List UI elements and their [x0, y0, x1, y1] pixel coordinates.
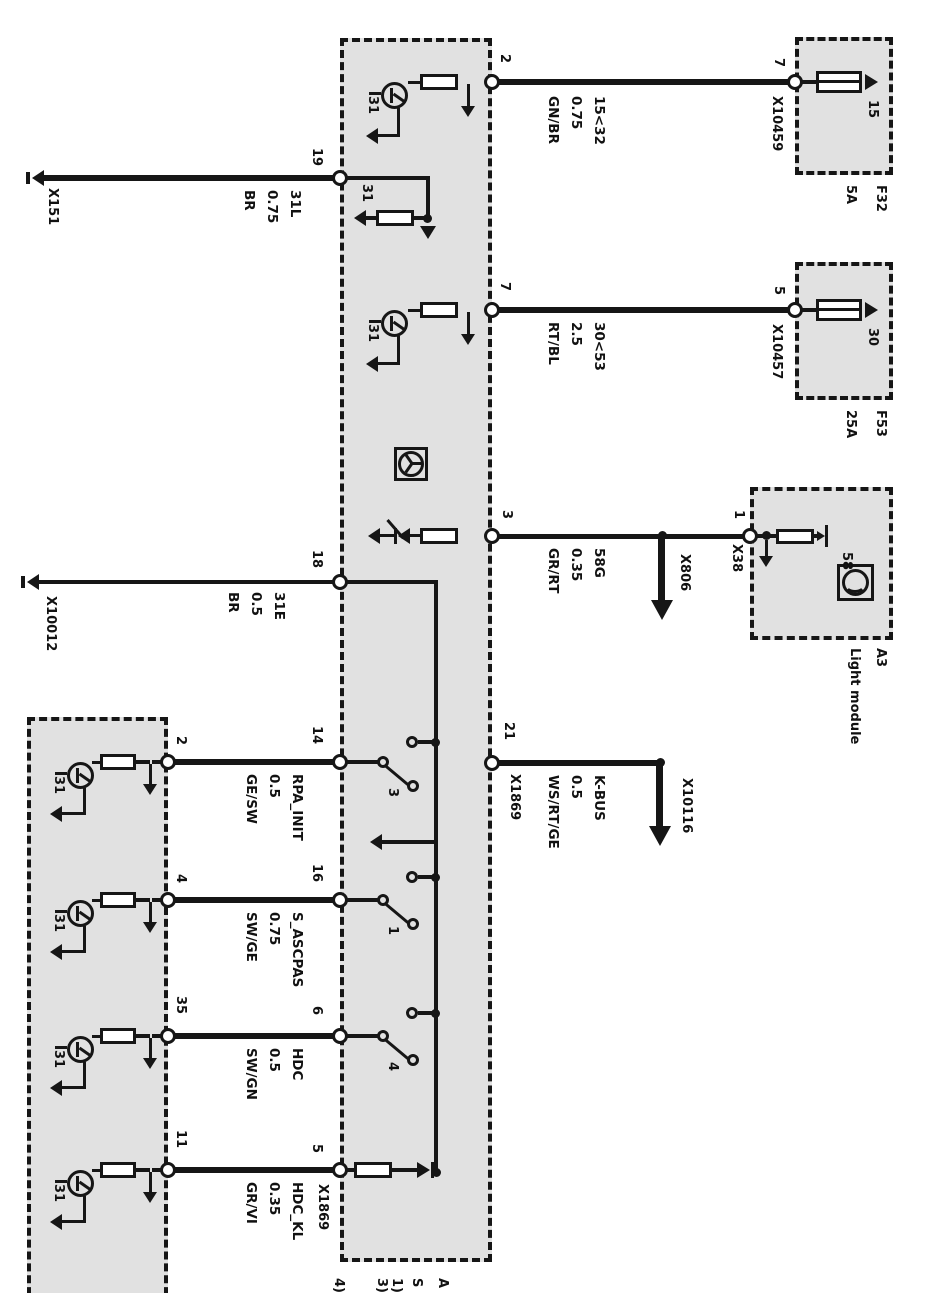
pin-f32-7 — [787, 74, 803, 90]
driver7-arrow-icon — [461, 334, 475, 345]
ground-icon — [50, 944, 62, 960]
pin-7 — [484, 302, 500, 318]
bdrv4-emitter-h — [83, 1196, 86, 1223]
bdrv4-seg2 — [92, 1169, 100, 1172]
terminal-31-label: 31 — [51, 1050, 66, 1068]
pin-18 — [332, 574, 348, 590]
wire-color: SW/GN — [239, 1048, 262, 1100]
pin-label-b4: 4 — [173, 874, 188, 883]
wire-label-15-32: 15<32 0.75 GN/BR — [541, 96, 610, 145]
wire-hdc-kl — [166, 1167, 340, 1173]
bdrv1-emitter-h — [83, 788, 86, 815]
contact-icon — [406, 871, 418, 883]
wire-name: S_ASCPAS — [285, 912, 308, 987]
pin-label-6: 6 — [309, 1006, 324, 1015]
light-module-name: Light module — [847, 648, 862, 744]
p3-seg2 — [380, 534, 394, 537]
connector-label-x10116: X10116 — [679, 778, 694, 833]
wire-label-s-ascpas: S_ASCPAS 0.75 SW/GE — [239, 912, 308, 987]
driver7-seg — [408, 309, 420, 312]
bdrv2-seg2 — [92, 899, 100, 902]
wire-name: 15<32 — [587, 96, 610, 145]
x10012-terminal-icon — [27, 574, 39, 590]
fuse-f53-name: F53 — [873, 410, 888, 437]
pin-b2 — [160, 754, 176, 770]
connector-label-x1869-top: X1869 — [507, 774, 522, 820]
switch-label-3: 3 — [385, 788, 400, 797]
switch3-tip — [407, 780, 419, 792]
terminal-label-30: 30 — [865, 328, 880, 346]
switch4-tip — [407, 1054, 419, 1066]
terminal-31-label: 31 — [365, 324, 380, 342]
x10012-terminal-bar — [21, 576, 25, 588]
pin-label-16: 16 — [309, 864, 324, 882]
pin-14 — [332, 754, 348, 770]
pin-label-b35: 35 — [173, 996, 188, 1014]
coupling-arrow-icon — [370, 834, 382, 850]
bdrv4-dashed-link — [136, 1168, 150, 1172]
a3-branch-shaft — [765, 540, 768, 556]
terminal-31-label: 31 — [365, 96, 380, 114]
pin-b11 — [160, 1162, 176, 1178]
connector-label-x10012: X10012 — [43, 596, 58, 651]
pin-a3-1 — [742, 528, 758, 544]
connector-label-x10457: X10457 — [769, 324, 784, 379]
pin-f53-5 — [787, 302, 803, 318]
x151-terminal-icon — [32, 170, 44, 186]
p19-seg — [366, 216, 376, 220]
wire-gauge: 0.5 — [262, 1048, 285, 1100]
resistor-icon — [100, 1162, 136, 1178]
wire-31e — [37, 580, 340, 584]
wire-15-32 — [487, 79, 797, 85]
fuse-f53-rating: 25A — [843, 410, 858, 438]
pin-19 — [332, 170, 348, 186]
wire-label-rpa-init: RPA_INIT 0.5 GE/SW — [239, 774, 308, 841]
wire-color: SW/GE — [239, 912, 262, 987]
terminal-31-label: 31 — [51, 776, 66, 794]
pin-label-21: 21 — [501, 722, 516, 740]
wire-gauge: 0.75 — [564, 96, 587, 145]
p3-seg1 — [410, 534, 420, 537]
pin-16 — [332, 892, 348, 908]
wire-color: GR/VI — [239, 1182, 262, 1240]
bdrv3-arrow-shaft — [149, 1038, 152, 1058]
driver2-base-lead — [369, 92, 381, 95]
wire-name: 31E — [267, 592, 290, 620]
transistor-icon — [67, 762, 94, 789]
resistor-icon — [354, 1162, 392, 1178]
bdrv3-base-lead — [55, 1046, 67, 1049]
driver2-seg — [408, 81, 420, 84]
ground-icon — [50, 1214, 62, 1230]
resistor-icon — [376, 210, 414, 226]
wire-kbus — [487, 760, 662, 766]
wire-label-31e: 31E 0.5 BR — [221, 592, 290, 620]
wire-gauge: 0.5 — [262, 774, 285, 841]
bdrv1-base-lead — [55, 772, 67, 775]
fuse-f32-rating: 5A — [843, 185, 858, 204]
bdrv2-base-lead — [55, 910, 67, 913]
wire-gauge: 0.5 — [564, 775, 587, 849]
wire-name: 30<53 — [587, 322, 610, 371]
driver7-emitter-h — [397, 336, 400, 365]
ground-icon — [50, 1080, 62, 1096]
bdrv2-arrow-icon — [143, 922, 157, 933]
bdrv3-seg2 — [92, 1035, 100, 1038]
schematic-canvas: 2 7 3 21 19 18 14 16 6 5 2 4 35 11 7 X10… — [0, 0, 932, 1293]
bdrv4-emitter-v — [62, 1220, 86, 1223]
p19-arrow-icon — [420, 226, 436, 239]
terminal-31-label: 31 — [51, 1184, 66, 1202]
resistor-icon — [100, 754, 136, 770]
bdrv1-seg2 — [92, 761, 100, 764]
bdrv4-arrow-shaft — [149, 1172, 152, 1192]
wire-gauge: 0.75 — [260, 190, 283, 223]
a3-branch-arrow-icon — [759, 556, 773, 567]
bdrv3-arrow-icon — [143, 1058, 157, 1069]
p5-seg2 — [392, 1168, 418, 1172]
wire-gauge: 0.5 — [244, 592, 267, 620]
pin-label-7: 7 — [497, 282, 512, 291]
wire-58g — [487, 534, 752, 539]
bus-stub — [418, 1011, 434, 1015]
wire-label-hdc-kl: HDC_KL 0.35 GR/VI — [239, 1182, 308, 1240]
contact-icon — [406, 1007, 418, 1019]
p19-branch — [414, 216, 426, 220]
transistor-icon — [67, 900, 94, 927]
wire-31l — [42, 175, 340, 181]
driver7-arrow-shaft — [467, 312, 470, 334]
resistor-icon — [100, 1028, 136, 1044]
bus-stub — [418, 740, 434, 744]
connector-label-x1869-bottom: X1869 — [315, 1184, 330, 1230]
driver7-base-lead — [369, 320, 381, 323]
ground-icon — [368, 528, 380, 544]
wire-s-ascpas — [166, 897, 340, 903]
resistor-icon — [420, 302, 458, 318]
driver2-arrow-shaft — [467, 84, 470, 106]
wire-label-hdc: HDC 0.5 SW/GN — [239, 1048, 308, 1100]
bdrv4-arrow-icon — [143, 1192, 157, 1203]
pin-label-f32: 7 — [771, 58, 786, 67]
ground-icon — [366, 356, 378, 372]
wire-hdc — [166, 1033, 340, 1039]
resistor-icon — [776, 529, 814, 544]
ground-icon — [366, 128, 378, 144]
wire-label-58g: 58G 0.35 GR/RT — [541, 548, 610, 593]
wire-name: HDC_KL — [285, 1182, 308, 1240]
bdrv3-dashed-link — [136, 1034, 150, 1038]
pin-6 — [332, 1028, 348, 1044]
driver7-emitter-v — [378, 362, 400, 365]
wire-gauge: 0.35 — [262, 1182, 285, 1240]
resistor-icon — [420, 74, 458, 90]
pin-3 — [484, 528, 500, 544]
coupling-arrow-shaft — [382, 840, 434, 844]
bdrv4-base-lead — [55, 1180, 67, 1183]
terminal-label-58: 58 — [839, 552, 854, 570]
wire-color: BR — [221, 592, 244, 620]
transistor-icon — [67, 1170, 94, 1197]
pin-label-19: 19 — [309, 148, 324, 166]
footnote-1: 1) — [389, 1278, 404, 1293]
connector-label-x38: X38 — [729, 544, 744, 572]
f32-feed-arrow-icon — [865, 74, 878, 90]
bdrv1-emitter-v — [62, 812, 86, 815]
bdrv1-arrow-shaft — [149, 764, 152, 784]
x806-arrow-shaft — [658, 538, 665, 602]
fuse-icon — [816, 71, 862, 93]
wire-gauge: 0.75 — [262, 912, 285, 987]
wire-name: 31L — [283, 190, 306, 223]
fuse-icon — [816, 299, 862, 321]
wire-gauge: 0.35 — [564, 548, 587, 593]
terminal-58-tick — [825, 525, 828, 547]
bdrv2-emitter-v — [62, 950, 86, 953]
wire-name: HDC — [285, 1048, 308, 1100]
resistor-icon — [420, 528, 458, 544]
wire-name: 58G — [587, 548, 610, 593]
wire-label-31l: 31L 0.75 BR — [237, 190, 306, 223]
driver2-emitter-v — [378, 134, 400, 137]
transistor-icon — [381, 310, 408, 337]
terminal-31-label: 31 — [51, 914, 66, 932]
driver2-emitter-h — [397, 108, 400, 137]
switch-unit-box — [27, 717, 168, 1293]
pin-label-3: 3 — [499, 510, 514, 519]
footnote-4: 4) — [331, 1278, 346, 1293]
connector-label-x806: X806 — [677, 554, 692, 591]
wire-30-53 — [487, 307, 797, 313]
pin-label-a3: 1 — [731, 510, 746, 519]
p18-riser — [340, 580, 435, 584]
pin-label-5: 5 — [309, 1144, 324, 1153]
pin-5 — [332, 1162, 348, 1178]
wire-color: RT/BL — [541, 322, 564, 371]
diode-icon — [417, 1162, 430, 1178]
ground-icon — [50, 806, 62, 822]
transistor-icon — [381, 82, 408, 109]
bus-stub — [418, 875, 434, 879]
terminal-58-arrow-icon — [817, 531, 825, 541]
pin-2 — [484, 74, 500, 90]
pin-label-b11: 11 — [173, 1130, 188, 1148]
ground-icon — [354, 210, 366, 226]
pin-label-b2: 2 — [173, 736, 188, 745]
pin-label-2: 2 — [497, 54, 512, 63]
x10116-arrow-shaft — [656, 766, 663, 828]
pin-label-14: 14 — [309, 726, 324, 744]
wire-name: RPA_INIT — [285, 774, 308, 841]
wire-color: GN/BR — [541, 96, 564, 145]
switch1-tip — [407, 918, 419, 930]
wire-label-30-53: 30<53 2.5 RT/BL — [541, 322, 610, 371]
terminal-label-15: 15 — [865, 100, 880, 118]
x806-arrow-icon — [651, 600, 673, 620]
pin-label-18: 18 — [309, 550, 324, 568]
wire-name: K-BUS — [587, 775, 610, 849]
bdrv2-emitter-h — [83, 926, 86, 953]
a3-junction — [762, 531, 771, 540]
bdrv3-emitter-h — [83, 1062, 86, 1089]
connector-label-x10459: X10459 — [769, 96, 784, 151]
terminal-31-label: 31 — [359, 184, 374, 202]
bdrv3-emitter-v — [62, 1086, 86, 1089]
switch-label-1: 1 — [385, 926, 400, 935]
bdrv1-arrow-icon — [143, 784, 157, 795]
contact-icon — [406, 736, 418, 748]
bdrv1-dashed-link — [136, 760, 150, 764]
wire-gauge: 2.5 — [564, 322, 587, 371]
wire-color: GE/SW — [239, 774, 262, 841]
x151-terminal-bar — [26, 172, 30, 184]
switch-label-4: 4 — [385, 1062, 400, 1071]
wire-color: BR — [237, 190, 260, 223]
x10116-arrow-icon — [649, 826, 671, 846]
connector-label-x151: X151 — [45, 188, 60, 225]
pin-b4 — [160, 892, 176, 908]
footnote-s: S — [409, 1278, 424, 1287]
lamp-crescent — [844, 577, 866, 593]
bdrv2-arrow-shaft — [149, 902, 152, 922]
footnote-3: 3) — [374, 1278, 389, 1293]
wire-label-kbus: K-BUS 0.5 WS/RT/GE — [541, 775, 610, 849]
fuse-f32-name: F32 — [873, 185, 888, 212]
driver2-arrow-icon — [461, 106, 475, 117]
bdrv2-dashed-link — [136, 898, 150, 902]
light-module-id: A3 — [873, 648, 888, 667]
wire-color: GR/RT — [541, 548, 564, 593]
resistor-icon — [100, 892, 136, 908]
pin-21 — [484, 755, 500, 771]
wiring-diagram-page: 2 7 3 21 19 18 14 16 6 5 2 4 35 11 7 X10… — [0, 0, 932, 1293]
footnote-a: A — [435, 1278, 450, 1288]
wire-rpa-init — [166, 759, 340, 765]
wire-color: WS/RT/GE — [541, 775, 564, 849]
f53-feed-arrow-icon — [865, 302, 878, 318]
p19-v — [340, 176, 426, 180]
pin-b35 — [160, 1028, 176, 1044]
diode-bar — [431, 1162, 434, 1178]
pin-label-f53: 5 — [771, 286, 786, 295]
transistor-icon — [67, 1036, 94, 1063]
